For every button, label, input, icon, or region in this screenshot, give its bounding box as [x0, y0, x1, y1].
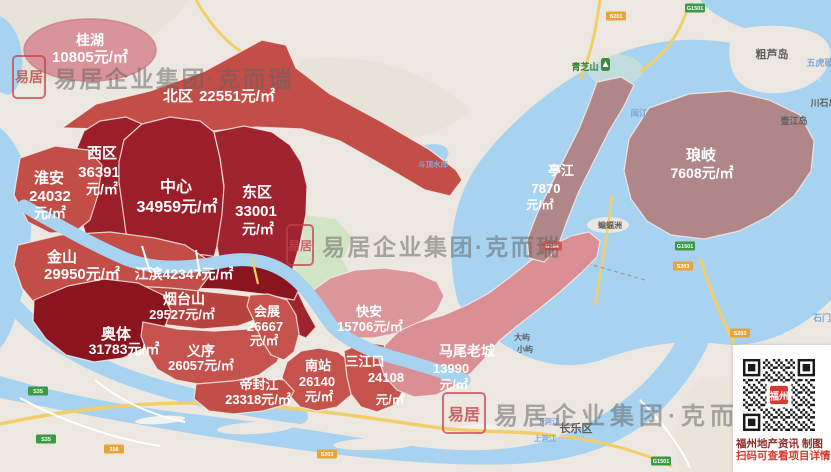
label-aoti-price: 31783元/㎡	[89, 341, 160, 357]
label-minjiang: 闽江	[630, 108, 648, 118]
label-xiqu-value: 36391	[78, 164, 120, 181]
label-xiqu-unit: 元/㎡	[86, 181, 118, 197]
label-bianfuzhou: 蝙蝠洲	[598, 220, 622, 230]
svg-text:G104: G104	[545, 244, 559, 250]
label-mawei-name: 马尾老城	[439, 343, 495, 359]
svg-text:G1501: G1501	[653, 459, 670, 465]
label-beiqu: 北区22551元/㎡	[163, 87, 275, 105]
map-canvas: 桂湖 10805元/㎡ 北区22551元/㎡ 西区 36391 元/㎡ 中心 3…	[0, 0, 831, 472]
road-badge: S203	[317, 450, 337, 459]
label-changle: 长乐区	[560, 421, 593, 435]
label-sanjiangkou-unit: 元/㎡	[376, 392, 405, 407]
label-huizhan-name: 会展	[254, 304, 281, 319]
road-badge: G1501	[651, 457, 671, 466]
qr-caption-line2: 扫码可查看项目详情	[736, 450, 831, 462]
label-sanjiangkou-name: 三江口	[345, 354, 384, 369]
label-jinshan-name: 金山	[46, 248, 77, 266]
label-kuaian-price: 15706元/㎡	[337, 319, 403, 334]
label-nanzhan-name: 南站	[305, 358, 331, 373]
qr-caption-line1: 福州地产资讯 制图	[736, 438, 831, 450]
label-huizhan-value: 26667	[247, 319, 283, 334]
road-badge: G104	[542, 242, 562, 251]
label-difengjiang-name: 帝封江	[239, 377, 278, 392]
road-badge: S35	[36, 435, 56, 444]
svg-text:S35: S35	[33, 389, 43, 395]
label-guihu-name: 桂湖	[75, 32, 104, 48]
label-huaian-unit: 元/㎡	[34, 205, 66, 221]
label-tingjiang-name: 亭江	[548, 163, 574, 178]
road-badge: S35	[28, 387, 48, 396]
label-langqi-name: 琅岐	[686, 146, 717, 164]
label-yantaishan-name: 烟台山	[163, 291, 205, 307]
label-huaian-name: 淮安	[34, 169, 64, 187]
label-jinshan-price: 29950元/㎡	[44, 265, 120, 283]
road-badge: S203	[673, 262, 693, 271]
label-xiqu-name: 西区	[87, 145, 117, 162]
label-nanzhan-value: 26140	[299, 374, 335, 389]
qr-code: 福州	[738, 354, 820, 436]
svg-text:G1501: G1501	[687, 6, 704, 12]
label-tingjiang-value: 7870	[532, 181, 561, 196]
label-mawei-unit: 元/㎡	[440, 377, 469, 392]
label-guihu-price: 10805元/㎡	[52, 48, 128, 66]
road-badge: G1501	[685, 4, 705, 13]
label-shimen: 石门	[812, 312, 831, 323]
fuzhou-house-price-map: 桂湖 10805元/㎡ 北区22551元/㎡ 西区 36391 元/㎡ 中心 3…	[0, 0, 831, 472]
label-xiadongjiang: 下洞江	[537, 416, 560, 426]
label-dayu: 大屿	[514, 332, 530, 342]
label-shuiku: 斗顶水库	[418, 159, 448, 169]
svg-text:G1501: G1501	[677, 244, 694, 250]
road-badge: S203	[730, 329, 750, 338]
label-shangdongjiang: 上洞江	[534, 433, 557, 443]
label-huaian-value: 24032	[29, 188, 71, 205]
svg-text:S35: S35	[41, 437, 51, 443]
label-xiaoyu: 小屿	[516, 344, 533, 354]
label-zhongxin-price: 34959元/㎡	[137, 197, 218, 216]
label-mawei-value: 13990	[433, 361, 469, 376]
label-yantaishan-price: 29527元/㎡	[149, 307, 215, 322]
label-chuanshi: 川石岛	[809, 97, 831, 108]
label-dongqu-unit: 元/㎡	[242, 221, 274, 237]
label-qingzhishan: 青芝山	[571, 61, 598, 72]
label-sanjiangkou-value: 24108	[368, 370, 404, 385]
label-langqi-price: 7608元/㎡	[670, 165, 733, 181]
road-badge: 316	[104, 445, 124, 454]
svg-text:S203: S203	[321, 452, 334, 458]
svg-text:S203: S203	[734, 331, 747, 337]
label-nanzhan-unit: 元/㎡	[305, 389, 334, 404]
label-dongqu-value: 33001	[235, 203, 277, 220]
label-difengjiang-price: 23318元/㎡	[225, 392, 291, 407]
label-hujiang: 壶江岛	[780, 115, 807, 126]
label-culudao: 粗芦岛	[756, 47, 789, 61]
label-jiangbin: 江滨42347元/㎡	[135, 266, 234, 282]
svg-text:S201: S201	[610, 14, 623, 20]
label-huizhan-unit: 元/㎡	[250, 333, 279, 348]
svg-text:S203: S203	[677, 264, 690, 270]
road-badge: G1501	[675, 242, 695, 251]
svg-text:316: 316	[109, 447, 118, 453]
qr-panel: 福州 福州地产资讯 制图 扫码可查看项目详情	[733, 345, 831, 472]
label-tingjiang-unit: 元/㎡	[526, 197, 553, 212]
label-kuaian-name: 快安	[356, 304, 382, 319]
road-badge: S201	[606, 12, 626, 21]
label-yixu-price: 26057元/㎡	[168, 358, 234, 373]
label-dongqu-name: 东区	[242, 183, 272, 201]
label-zhongxin-name: 中心	[160, 177, 192, 196]
label-wuhu: 五虎礁	[806, 57, 831, 68]
qr-center-label: 福州	[769, 390, 789, 402]
label-yixu-name: 义序	[187, 343, 215, 359]
